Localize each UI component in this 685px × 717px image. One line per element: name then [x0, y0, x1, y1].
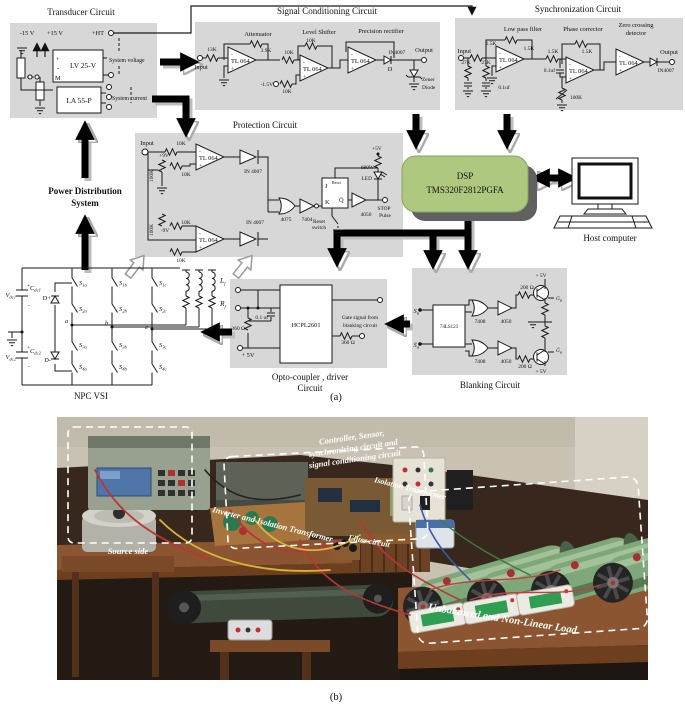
sc-output-label: Output [415, 47, 433, 54]
bl-4050-2: 4050 [501, 359, 512, 365]
r10k-in: 10K [284, 50, 293, 56]
svg-text:+: + [199, 163, 202, 169]
svg-text:+: + [499, 65, 502, 71]
pt-amp2: TL 064 [199, 237, 219, 244]
sync-diode: IN4007 [658, 68, 675, 74]
system-current-label: System current [112, 96, 147, 102]
sc-input-label: Input [194, 64, 208, 71]
svg-text:S2a: S2a [79, 306, 88, 314]
pt-led: LED [362, 176, 373, 182]
npc-vsi: Vdc1 Cdc1 + - Vdc2 Cdc2 + - D+ D- S1a S2… [5, 268, 226, 401]
pt-7404: 7404 [302, 217, 313, 223]
pt-p5v: +5V [372, 146, 382, 152]
source-side-label: Source side [108, 546, 149, 556]
vdc1-sub: dc1 [9, 295, 16, 300]
precision-rectifier-label: Precision rectifier [358, 28, 404, 35]
rf-sub: f [225, 304, 227, 309]
protection-title: Protection Circuit [233, 120, 298, 130]
sync-title: Synchronization Circuit [535, 4, 622, 14]
pt-input-label: Input [140, 140, 154, 147]
oc-cap: 0.1 uf [255, 314, 268, 321]
sy-amp3: TL 064 [619, 60, 639, 67]
sc-amp1: TL 064 [231, 58, 251, 65]
sc-amp2: TL 064 [303, 66, 323, 73]
cdc1-plus: + [27, 283, 30, 289]
monitor-screen [579, 164, 631, 198]
pt-4050: 4050 [361, 212, 372, 218]
la55-label: LA 55-P [66, 96, 91, 105]
pt-d2: IN 4007 [246, 220, 264, 226]
dsp-block: DSP TMS320F2812PGFA [402, 156, 537, 221]
svg-text:S3c: S3c [159, 342, 167, 350]
figure-page: Power Distribution System Transducer Cir… [0, 0, 685, 712]
svg-text:S4c: S4c [159, 364, 167, 372]
lf-sub: f [224, 281, 226, 286]
circuit-diagram: Power Distribution System Transducer Cir… [5, 4, 683, 403]
jk-k: K [325, 199, 330, 206]
black-device [447, 470, 473, 510]
oc-r-right: 360 Ω [341, 340, 354, 346]
svg-text:+: + [619, 68, 622, 74]
output-filter: Lf Rf [71, 270, 227, 331]
pt-r10k-1: 10K [176, 141, 185, 147]
phase-b: b [105, 320, 108, 327]
r10k-fb: 10K [306, 38, 315, 44]
pt-r100k-2: 100K [149, 224, 155, 236]
svg-text:Rf: Rf [219, 299, 227, 309]
label-neg15: -15 V [20, 30, 35, 37]
gate-signal-2: blanking circuit [343, 323, 377, 329]
host-computer: Host computer [554, 158, 652, 243]
svg-text:+: + [199, 245, 202, 251]
sy-r4: 1.5K [582, 49, 593, 55]
transducer-title: Transducer Circuit [47, 7, 115, 17]
sy-r1: 1.5K [486, 41, 497, 47]
switch-labels: S1a S2a S3a S4a S1b S2b S3b S4b S1c S2c … [79, 280, 167, 372]
zcd-label-1: Zero crossing [619, 22, 655, 29]
pt-r680: 680W [361, 165, 375, 171]
bl-7408-1: 7408 [475, 319, 486, 325]
d-minus: D- [44, 357, 51, 364]
svg-text:+: + [231, 66, 234, 72]
zcd-label-2: detector [626, 30, 647, 37]
caption-a: (a) [330, 392, 342, 403]
sy-amp1: TL 064 [499, 57, 519, 64]
pt-n9v: -9V [161, 228, 169, 234]
bl-p5v-bot: + 5V [536, 369, 547, 375]
svg-text:Cdc1: Cdc1 [30, 285, 41, 293]
cdc1-minus: - [28, 303, 30, 309]
hcpl-label: HCPL2601 [291, 322, 320, 329]
cdc2-plus: + [27, 345, 30, 351]
sc-diode: IN4007 [389, 50, 406, 56]
figure-svg: Power Distribution System Transducer Cir… [0, 0, 685, 712]
r13k: 13K [207, 47, 216, 53]
sy-c1: 0.1uf [498, 84, 509, 91]
ic74ls123-label: 74LS123 [440, 325, 459, 330]
cdc2-minus: - [28, 364, 30, 370]
sc-amp3: TL 064 [351, 58, 371, 65]
pt-r10k-4: 10K [176, 258, 185, 264]
r39k: 3.9K [261, 48, 272, 54]
bl-7408-2: 7408 [475, 359, 486, 365]
r10k-dn: 10K [282, 89, 291, 95]
svg-text:S3b: S3b [119, 342, 128, 350]
oc-r-left: 360 Ω [232, 326, 245, 332]
label-pos15: +15 V [47, 30, 63, 37]
oc-p5v: + 5V [241, 352, 254, 359]
reset-switch-2: switch [312, 225, 326, 231]
sync-input-label: Input [458, 48, 472, 55]
cdc1-sub: dc1 [34, 288, 41, 293]
sync-output-label: Output [660, 49, 678, 56]
lv-minus: - [57, 65, 59, 72]
pds-label-2: System [71, 198, 99, 208]
host-computer-label: Host computer [583, 233, 636, 243]
pt-r10k-2: 10K [181, 172, 190, 178]
svg-text:+: + [303, 74, 306, 80]
dsp-label-1: DSP [457, 171, 474, 181]
sy-pot: 100K [570, 95, 582, 101]
bl-p5v-top: + 5V [536, 273, 547, 279]
svg-text:Cdc2: Cdc2 [30, 348, 42, 356]
variac-stand [62, 556, 174, 572]
svg-text:S1b: S1b [119, 280, 128, 288]
pt-r10k-3: 10K [181, 220, 190, 226]
cdc2-sub: dc2 [34, 351, 41, 356]
opto-caption-1: Opto-coupler , driver [272, 372, 348, 382]
pds-label-1: Power Distribution [48, 186, 122, 196]
stool [210, 640, 330, 652]
svg-text:Lf: Lf [219, 276, 226, 286]
phase-a: a [65, 318, 68, 325]
svg-text:+: + [351, 66, 354, 72]
sy-r3: 1.5K [548, 49, 559, 55]
svg-text:Ga: Ga [556, 296, 563, 303]
svg-text:Vdc2: Vdc2 [5, 354, 16, 362]
experimental-photo: Source side Controller, Sensor, synchron… [57, 417, 685, 680]
pt-4075: 4075 [281, 217, 292, 223]
zener-label-2: Diode [422, 85, 436, 91]
sy-c2: 0.1uf [544, 67, 555, 74]
opto-caption-2: Circuit [298, 383, 323, 393]
dsp-label-2: TMS320F2812PGFA [426, 185, 504, 195]
bl-r200-1: 200 Ω [520, 285, 533, 291]
jk-reset: Reset [332, 180, 342, 185]
svg-text:+: + [569, 76, 572, 82]
bl-4050-1: 4050 [501, 319, 512, 325]
blanking-caption: Blanking Circuit [460, 380, 521, 390]
pt-amp1: TL 064 [199, 155, 219, 162]
sc-d: D [388, 66, 393, 73]
lv25-label: LV 25-V [70, 61, 97, 70]
level-shifter-label: Level Shifter [302, 29, 336, 36]
lpf-label: Low pass filter [504, 26, 543, 33]
svg-text:Vdc1: Vdc1 [5, 292, 16, 300]
svg-text:S2c: S2c [159, 306, 167, 314]
caption-b: (b) [330, 692, 343, 703]
svg-text:S4a: S4a [79, 364, 88, 372]
d-plus: D+ [43, 295, 52, 302]
pt-d1: IN 4007 [244, 169, 262, 175]
svg-text:S2b: S2b [119, 306, 128, 314]
dsp-box [402, 156, 528, 212]
sy-r2: 1.5K [524, 46, 535, 52]
label-ht: +HT [92, 30, 104, 37]
pt-stop: STOP [377, 206, 390, 212]
vdc2-sub: dc2 [9, 357, 16, 362]
sy-amp2: TL 064 [569, 68, 589, 75]
svg-text:S1a: S1a [79, 280, 88, 288]
attenuator-label: Attenuator [244, 31, 272, 38]
svg-text:S4b: S4b [119, 364, 128, 372]
pt-p9v: +9V [159, 153, 169, 159]
gate-signal-1: Gate signal from [342, 314, 379, 321]
npc-vsi-caption: NPC VSI [74, 391, 108, 401]
lv-plus: + [56, 56, 60, 63]
system-voltage-label: System voltage [109, 58, 145, 64]
lv-m: M [55, 75, 61, 82]
pt-pulse: Pulse [379, 213, 391, 219]
jk-qbar: Q̄ [339, 197, 344, 204]
phase-corrector-label: Phase corrector [563, 26, 603, 33]
svg-text:S1c: S1c [159, 280, 167, 288]
pt-r100k-1: 100K [149, 170, 155, 182]
v-offset: -1.5V [261, 82, 274, 88]
zener-label-1: Zener [422, 77, 435, 83]
sc-title: Signal Conditioning Circuit [277, 6, 378, 16]
bl-r200-2: 200 Ω [518, 364, 531, 370]
sy-r27a: 27K [461, 60, 470, 66]
svg-text:S3a: S3a [79, 342, 88, 350]
